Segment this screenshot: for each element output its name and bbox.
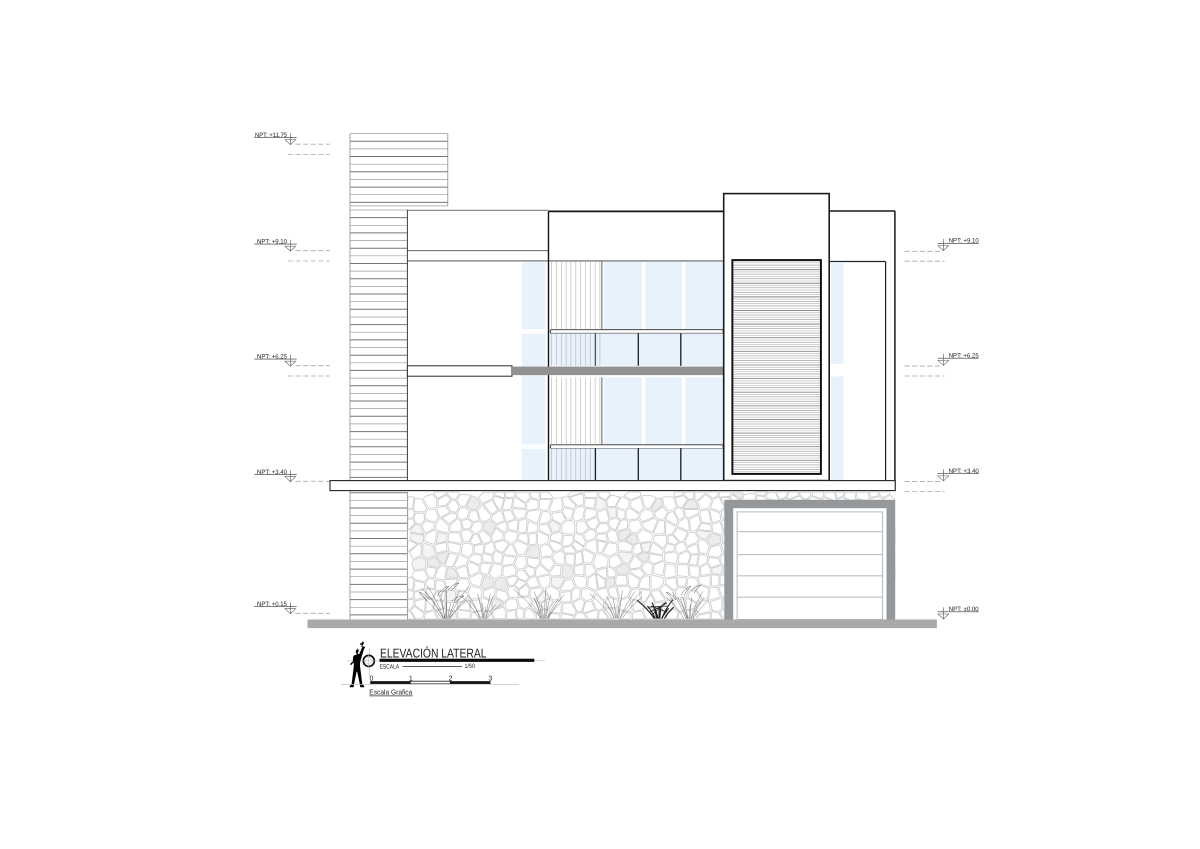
svg-text:ESCALA: ESCALA: [380, 663, 400, 670]
svg-text:Escala Grafica: Escala Grafica: [369, 688, 412, 697]
svg-text:ELEVACIÓN LATERAL: ELEVACIÓN LATERAL: [380, 646, 487, 661]
svg-text:1/50: 1/50: [465, 663, 476, 670]
